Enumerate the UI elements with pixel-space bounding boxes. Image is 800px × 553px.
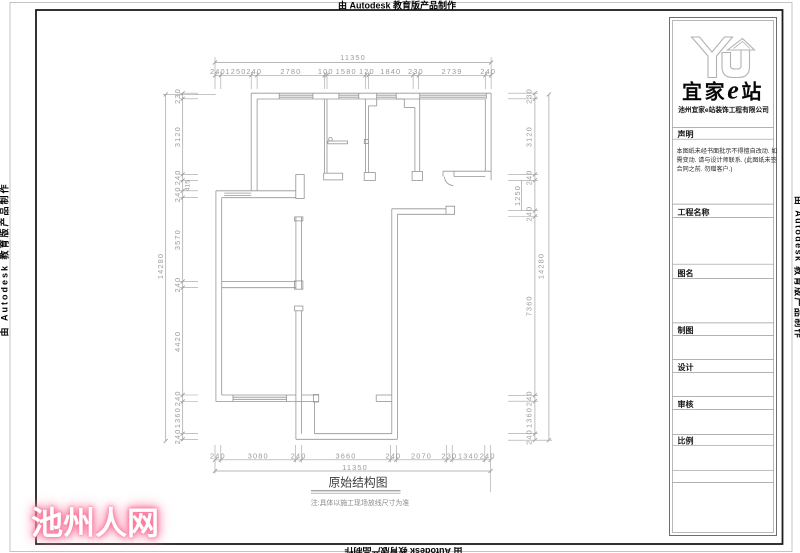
svg-text:240: 240 (480, 452, 496, 461)
svg-text:2070: 2070 (411, 452, 432, 461)
svg-text:1250: 1250 (513, 185, 522, 206)
svg-text:11350: 11350 (342, 463, 368, 472)
svg-text:240: 240 (210, 452, 226, 461)
svg-text:由 Autodesk 教育版产品制作: 由 Autodesk 教育版产品制作 (344, 546, 462, 553)
svg-text:2739: 2739 (441, 67, 462, 76)
svg-text:池州宜家e站装饰工程有限公司: 池州宜家e站装饰工程有限公司 (678, 105, 769, 114)
svg-text:3080: 3080 (248, 452, 269, 461)
svg-text:合同之前. 勿赠客户.): 合同之前. 勿赠客户.) (677, 165, 733, 173)
svg-text:图名: 图名 (678, 268, 694, 278)
svg-text:240: 240 (525, 429, 534, 445)
svg-text:由 Autodesk 教育版产品制作: 由 Autodesk 教育版产品制作 (0, 182, 10, 336)
svg-text:240: 240 (173, 170, 182, 186)
svg-text:2780: 2780 (280, 67, 301, 76)
svg-text:240: 240 (173, 390, 182, 406)
svg-text:3120: 3120 (525, 126, 534, 147)
svg-text:需变动. 请与设计师联系. (此图纸未签: 需变动. 请与设计师联系. (此图纸未签 (677, 156, 777, 164)
svg-text:240: 240 (480, 67, 496, 76)
svg-text:100: 100 (318, 67, 334, 76)
svg-text:240: 240 (525, 170, 534, 186)
svg-text:1840: 1840 (380, 67, 401, 76)
svg-text:11350: 11350 (340, 53, 366, 62)
svg-text:240: 240 (525, 390, 534, 406)
svg-text:1360: 1360 (525, 407, 534, 428)
svg-text:由 Autodesk 教育版产品制作: 由 Autodesk 教育版产品制作 (794, 196, 800, 339)
svg-text:240: 240 (173, 186, 182, 202)
svg-text:120: 120 (359, 67, 375, 76)
svg-text:7360: 7360 (525, 295, 534, 316)
svg-text:240: 240 (210, 67, 226, 76)
svg-text:230: 230 (525, 88, 534, 104)
svg-text:本图纸未经书面批示不得擅自改动. 如: 本图纸未经书面批示不得擅自改动. 如 (677, 147, 778, 155)
svg-text:1580: 1580 (336, 67, 357, 76)
svg-text:工程名称: 工程名称 (678, 207, 710, 217)
svg-text:比例: 比例 (678, 435, 694, 445)
svg-text:声明: 声明 (677, 129, 694, 139)
svg-text:设计: 设计 (678, 362, 694, 372)
svg-text:由 Autodesk 教育版产品制作: 由 Autodesk 教育版产品制作 (338, 0, 456, 10)
svg-text:3570: 3570 (173, 229, 182, 250)
svg-text:240: 240 (386, 452, 402, 461)
svg-text:原始结构图: 原始结构图 (329, 476, 388, 490)
svg-text:注:具体以施工现场放线尺寸为准: 注:具体以施工现场放线尺寸为准 (311, 498, 409, 507)
svg-text:审核: 审核 (678, 399, 694, 409)
svg-text:4420: 4420 (173, 331, 182, 352)
svg-text:415: 415 (185, 180, 192, 191)
svg-text:制图: 制图 (678, 325, 694, 335)
svg-text:宜家e站: 宜家e站 (682, 76, 764, 105)
svg-text:240: 240 (525, 206, 534, 222)
svg-text:240: 240 (173, 277, 182, 293)
svg-text:230: 230 (442, 452, 458, 461)
svg-text:230: 230 (173, 88, 182, 104)
svg-text:14280: 14280 (537, 253, 546, 279)
svg-text:240: 240 (173, 429, 182, 445)
svg-text:3120: 3120 (173, 126, 182, 147)
svg-text:1340: 1340 (458, 452, 479, 461)
svg-text:230: 230 (408, 67, 424, 76)
svg-text:240: 240 (246, 67, 262, 76)
svg-text:14280: 14280 (156, 253, 165, 279)
svg-text:240: 240 (291, 452, 307, 461)
svg-text:3660: 3660 (335, 452, 356, 461)
svg-text:1360: 1360 (173, 407, 182, 428)
svg-text:1250: 1250 (225, 67, 246, 76)
